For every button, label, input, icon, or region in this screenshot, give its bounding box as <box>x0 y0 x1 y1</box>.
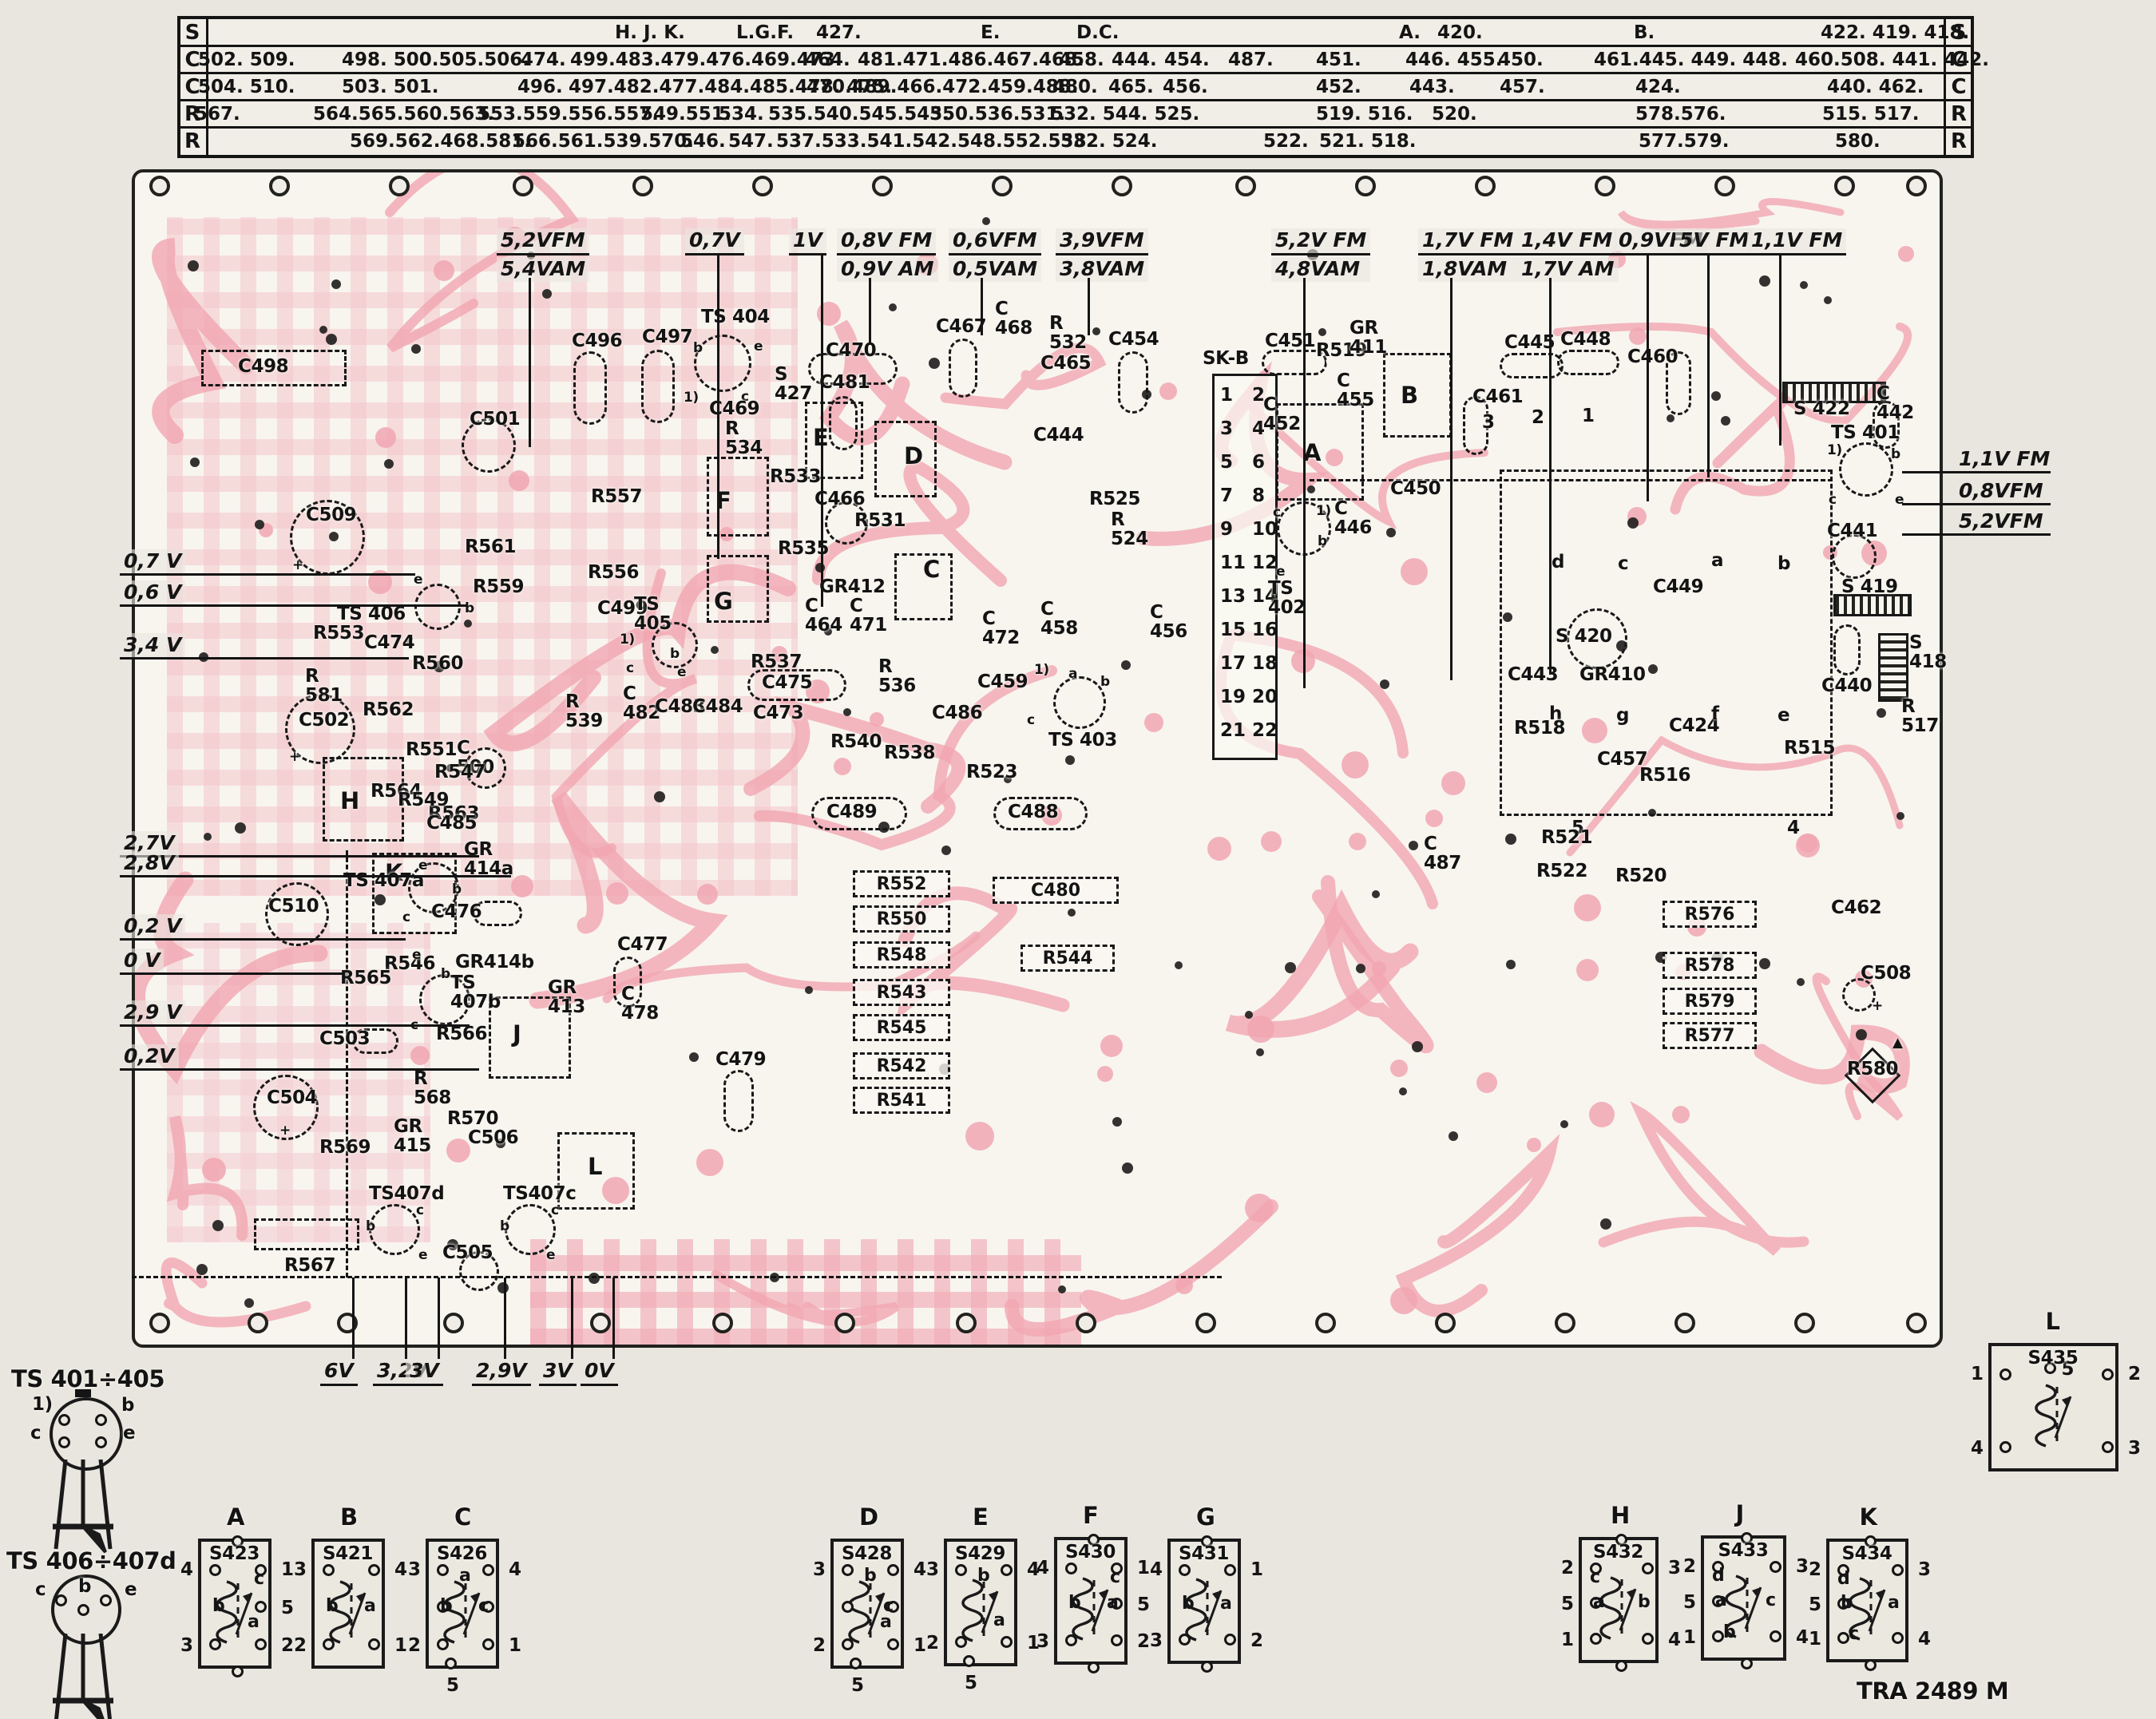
coil-detail-letter: B <box>340 1505 358 1529</box>
pinout-title: TS 401÷405 <box>11 1367 164 1391</box>
coil-pin <box>209 1638 221 1650</box>
component-label: R 524 <box>1111 511 1148 549</box>
component-label: C479 <box>715 1051 766 1070</box>
component-label: b <box>1891 448 1900 462</box>
table-cell: 460.508. 441. 442. <box>1795 50 1989 70</box>
voltage-leader-line <box>120 875 511 877</box>
callout-leader-line <box>1450 278 1453 680</box>
coil-pin-number: 3 <box>294 1559 307 1580</box>
component-label: G <box>714 589 732 613</box>
coil-pin-number: 4 <box>1971 1438 1984 1459</box>
component-label: GR 415 <box>394 1118 431 1156</box>
voltage-callout: 5V FM <box>1675 228 1753 255</box>
skb-pin-number: 11 <box>1220 553 1246 573</box>
component-label: 1) <box>684 391 699 406</box>
skb-pin-number: 3 <box>1220 418 1233 439</box>
table-cell: 458. <box>1059 50 1104 70</box>
component-label: B <box>1401 383 1418 407</box>
callout-leader-line <box>529 278 531 447</box>
coil-pin-number: 4 <box>1036 1558 1049 1578</box>
component-label: R520 <box>1615 867 1667 886</box>
pinout-pin-letter: b <box>78 1578 91 1597</box>
coil-pin-number: 5 <box>851 1675 864 1696</box>
coil-pin-number: 3 <box>2128 1438 2141 1459</box>
component-label: 1 <box>1582 407 1595 426</box>
voltage-callout: 0,6VFM0,5VAM <box>949 228 1041 282</box>
component-label: c <box>1273 506 1281 521</box>
coil-pin <box>323 1564 335 1576</box>
table-cell: 515. 517. <box>1822 104 1920 125</box>
voltage-leader-line <box>120 972 345 975</box>
pinout-pin-letter: c <box>30 1424 41 1444</box>
component-label: C484 <box>692 698 743 717</box>
coil-s-number: S429 <box>955 1545 1005 1564</box>
winding-letter: a <box>364 1596 376 1616</box>
table-cell: 481.471.486.467.468. <box>858 50 1084 70</box>
skb-pin-number: 19 <box>1220 687 1246 707</box>
winding-letter: c <box>478 1596 489 1616</box>
resistor-box: R541 <box>853 1087 950 1114</box>
table-cell: 502. 509. <box>198 50 295 70</box>
skb-pin-number: 8 <box>1252 485 1265 506</box>
coil-pin-number: 4 <box>1796 1627 1809 1648</box>
board-hole <box>513 176 533 196</box>
board-hole <box>1195 1313 1216 1333</box>
component-label: TS 407b <box>450 974 501 1012</box>
table-cell: 522. <box>1263 131 1309 152</box>
component-label: R538 <box>884 744 935 763</box>
component-label: C496 <box>572 332 622 351</box>
component-label: C454 <box>1108 331 1159 350</box>
winding-letter: b <box>1068 1593 1081 1613</box>
resistor-box: R545 <box>853 1014 950 1041</box>
callout-leader-line <box>869 278 871 345</box>
winding-letter: c <box>1590 1567 1600 1587</box>
component-label: c <box>551 1204 559 1218</box>
component-label: C473 <box>753 704 803 723</box>
pinout-pin-letter: e <box>125 1581 137 1600</box>
voltage-leader-line <box>120 938 406 941</box>
board-hole <box>1906 176 1927 196</box>
coil-pin <box>850 1658 862 1669</box>
resistor-box: R552 <box>853 870 950 897</box>
coil-pin-number: 4 <box>1918 1629 1931 1650</box>
winding-letter: b <box>212 1596 225 1616</box>
pinout-pin <box>55 1594 67 1606</box>
table-cell: 577.579. <box>1639 131 1730 152</box>
component-label: C508 <box>1861 964 1911 984</box>
coil-pin-number: 4 <box>180 1559 193 1580</box>
component-label: e <box>677 666 686 680</box>
table-cell: 535.540.545.543. <box>768 104 949 125</box>
winding-letter: c <box>1849 1624 1859 1644</box>
coil-pin-number: 2 <box>1561 1558 1574 1578</box>
table-cell: H. J. K. <box>615 22 685 43</box>
component-label: C 472 <box>982 610 1020 648</box>
component-label: e <box>412 949 421 963</box>
table-cell: B. <box>1634 22 1655 43</box>
coil-pin-number: 2 <box>1683 1556 1696 1577</box>
winding-letter: c <box>1766 1590 1776 1610</box>
component-label: S 422 <box>1793 400 1850 419</box>
table-cell: 452. <box>1316 77 1361 97</box>
table-cell: 464. <box>805 50 850 70</box>
component-label: e <box>546 1249 555 1263</box>
voltage-callout: 3,9VFM3,8VAM <box>1056 228 1148 282</box>
coil-pin <box>1999 1368 2011 1380</box>
board-hole <box>1435 1313 1456 1333</box>
table-cell: 578.576. <box>1635 104 1726 125</box>
component-label: R570 <box>447 1110 498 1129</box>
component-label: TS 401 <box>1831 424 1900 443</box>
board-hole <box>1906 1313 1927 1333</box>
skb-pin-number: 17 <box>1220 653 1246 674</box>
table-cell: 422. 419. 418. <box>1821 22 1969 43</box>
table-cell: 457. <box>1500 77 1545 97</box>
component-label: R515 <box>1784 739 1835 758</box>
coil-pin <box>1741 1658 1753 1669</box>
table-cell: 420. <box>1437 22 1483 43</box>
table-cell: 487. <box>1228 50 1274 70</box>
component-label: b <box>693 342 703 356</box>
component-label: C 446 <box>1334 500 1372 538</box>
table-cell: 443. <box>1409 77 1455 97</box>
coil-pin-number: 5 <box>1561 1594 1574 1614</box>
component-label: C509 <box>306 506 356 525</box>
coil-pin-number: 1 <box>1561 1630 1574 1650</box>
component-label: C504 <box>267 1089 317 1108</box>
table-cell: 444. <box>1112 50 1157 70</box>
board-hole <box>992 176 1013 196</box>
component-label: C474 <box>364 634 414 653</box>
table-cell: 532. 524. <box>1060 131 1158 152</box>
table-cell: 465. <box>1108 77 1154 97</box>
dashed-line <box>132 1276 1222 1278</box>
coil-pin-number: 2 <box>926 1633 939 1654</box>
component-label: e <box>1895 493 1904 508</box>
coil-s-number: S430 <box>1065 1543 1116 1563</box>
coil-pin <box>1892 1632 1904 1644</box>
coil-pin-number: 4 <box>914 1559 926 1580</box>
winding-letter: b <box>977 1566 990 1586</box>
component-label: R525 <box>1089 490 1140 509</box>
coil-pin <box>1088 1662 1100 1673</box>
component-label: S 419 <box>1841 578 1898 597</box>
component-label: C481 <box>819 374 870 393</box>
component-label: R551 <box>406 741 457 760</box>
board-hole <box>632 176 653 196</box>
coil-pin <box>1179 1564 1191 1576</box>
coil-pin-number: 2 <box>294 1635 307 1656</box>
coil-pin-number: 2 <box>1250 1630 1263 1651</box>
coil-pin <box>482 1564 494 1576</box>
component-label: C 478 <box>621 985 659 1024</box>
pinout-legs <box>11 1634 155 1719</box>
table-row-label: R <box>179 128 206 155</box>
skb-pin-number: 9 <box>1220 519 1233 540</box>
component-label: C503 <box>319 1030 370 1049</box>
skb-pin-number: 1 <box>1220 385 1233 406</box>
winding-letter: c <box>1110 1567 1120 1587</box>
board-hole <box>752 176 773 196</box>
voltage-label-bottom: 6V <box>320 1359 358 1386</box>
component-label: GR 413 <box>548 979 585 1017</box>
component-label: 2 <box>1532 409 1544 428</box>
component-label: c <box>626 662 634 676</box>
coil-pin-number: 3 <box>813 1559 826 1580</box>
component-label: a <box>1711 552 1723 571</box>
coil-pin-number: 2 <box>1137 1631 1150 1652</box>
table-row-divider <box>177 45 1974 47</box>
voltage-label-left: 0,2V <box>120 1044 179 1069</box>
table-cell: 532. 544. 525. <box>1051 104 1199 125</box>
pinout-pin <box>58 1414 70 1426</box>
table-cell: 519. 516. <box>1316 104 1413 125</box>
voltage-label-right: 5,2VFM <box>1955 509 2047 534</box>
component-label: R549 <box>398 791 449 810</box>
component-label: A <box>1303 441 1321 465</box>
component-label: b <box>1318 535 1327 549</box>
table-cell: 550.536.531. <box>929 104 1065 125</box>
voltage-leader-line <box>120 657 409 659</box>
coil-pin <box>1224 1564 1236 1576</box>
voltage-am-label: 5,4VAM <box>497 257 589 282</box>
skb-pin-number: 6 <box>1252 452 1265 473</box>
coil-pin <box>887 1638 899 1650</box>
component-label: e <box>418 1249 427 1263</box>
table-cell: 547. <box>728 131 774 152</box>
board-hole <box>1076 1313 1096 1333</box>
component-label: c <box>1618 555 1628 574</box>
coil-pin-number: 5 <box>281 1598 294 1618</box>
table-row-label: C <box>1945 73 1972 101</box>
coil-pin <box>1590 1633 1602 1645</box>
voltage-leader-line <box>1902 503 2051 505</box>
component-label: R569 <box>319 1139 371 1158</box>
callout-leader-line <box>1779 255 1781 446</box>
table-cell: 521. 518. <box>1319 131 1417 152</box>
component-label: b <box>441 968 450 982</box>
coil-pin-number: 1 <box>509 1635 521 1656</box>
voltage-label-bottom: 3V <box>539 1359 577 1386</box>
board-hole <box>1834 176 1855 196</box>
coil-pin-number: 4 <box>394 1559 407 1580</box>
coil-pin <box>1642 1633 1654 1645</box>
voltage-leader-line <box>612 1277 615 1359</box>
component-label: C465 <box>1040 354 1091 374</box>
component-label: c <box>1829 493 1837 508</box>
voltage-callout: 0,8V FM0,9V AM <box>837 228 938 282</box>
component-label: GR414b <box>455 953 534 972</box>
table-row-label: R <box>1945 101 1972 128</box>
winding-letter: b <box>864 1566 877 1586</box>
component-label: GR 414a <box>464 841 513 879</box>
component-label: C462 <box>1831 899 1881 918</box>
winding-letter: a <box>1220 1594 1232 1614</box>
skb-pin-number: 20 <box>1252 687 1278 707</box>
coil-detail-letter: C <box>454 1505 471 1529</box>
board-hole <box>834 1313 855 1333</box>
callout-leader-line <box>1549 278 1552 675</box>
coil-pin-number: 1 <box>1809 1629 1821 1650</box>
skb-pin-number: 16 <box>1252 620 1278 640</box>
component-label: R 581 <box>305 667 343 706</box>
component-label: C498 <box>238 358 288 377</box>
component-label: C451 <box>1265 332 1315 351</box>
winding-letter: b <box>1723 1622 1736 1642</box>
voltage-am-label: 4,8VAM <box>1271 257 1370 282</box>
component-label: GR412 <box>819 578 886 597</box>
coil-winding <box>1833 594 1912 616</box>
table-cell: 480. <box>1052 77 1098 97</box>
pinout-pin-letter: 1) <box>32 1396 53 1415</box>
resistor-box: C480 <box>993 877 1119 904</box>
voltage-label-left: 0,6 V <box>120 580 185 605</box>
coil-pin <box>1201 1661 1213 1673</box>
component-label: R580 <box>1847 1060 1898 1079</box>
component-label: c <box>1027 714 1035 728</box>
board-hole <box>1475 176 1496 196</box>
component-label: R521 <box>1541 829 1592 848</box>
component-label: d <box>1552 553 1564 572</box>
component-label: c <box>402 911 410 925</box>
pcb-layout-page: TRA 2489 M SSH. J. K.L.G.F.427.E.D.C.A.4… <box>0 0 2156 1719</box>
coil-pin-number: 1 <box>1971 1364 1984 1384</box>
resistor-box: R543 <box>853 979 950 1006</box>
coil-pin <box>1642 1563 1654 1574</box>
component-label: C449 <box>1653 578 1703 597</box>
table-cell: 451. <box>1316 50 1361 70</box>
voltage-leader-line <box>120 1024 470 1027</box>
coil-pin-number: 1 <box>1250 1559 1263 1580</box>
component-label: R561 <box>465 538 516 557</box>
component-label: C 442 <box>1877 385 1914 423</box>
component-label: L <box>588 1155 602 1178</box>
table-cell: 537.533.541.542.548.552.538. <box>776 131 1093 152</box>
voltage-fm-label: 5V FM <box>1675 228 1753 255</box>
voltage-fm-label: 0,8V FM <box>837 228 936 255</box>
component-label: GR 411 <box>1349 319 1387 358</box>
component-label: 1) <box>1827 444 1842 458</box>
resistor-box: R576 <box>1663 901 1757 928</box>
component-label: C 452 <box>1263 396 1301 434</box>
component-label: TS407d <box>369 1185 444 1204</box>
component-label: C461 <box>1472 388 1523 407</box>
component-label: C440 <box>1821 677 1872 696</box>
callout-leader-line <box>717 255 719 559</box>
component-label: e <box>1276 565 1285 580</box>
coil-detail-letter: F <box>1083 1503 1098 1527</box>
board-hole <box>872 176 893 196</box>
coil-s-number: S426 <box>437 1545 487 1564</box>
board-hole <box>1595 176 1615 196</box>
component-label: ▲ <box>1892 1036 1903 1051</box>
skb-label: SK-B <box>1203 350 1249 369</box>
component-label: S 420 <box>1556 628 1612 647</box>
coil-pin-number: 3 <box>408 1559 421 1580</box>
voltage-leader-line <box>571 1277 573 1359</box>
table-cell: 498. 500.505.506. <box>342 50 529 70</box>
coil-detail-letter: L <box>2046 1309 2060 1333</box>
component-label: + <box>279 1124 291 1139</box>
table-cell: 440. 462. <box>1827 77 1924 97</box>
coil-pin-number: 4 <box>1668 1630 1681 1650</box>
callout-leader-line <box>981 278 983 335</box>
voltage-label-right: 0,8VFM <box>1955 479 2047 504</box>
coil-detail-letter: H <box>1611 1503 1630 1527</box>
skb-pin-number: 22 <box>1252 720 1278 741</box>
coil-detail-letter: K <box>1860 1505 1877 1529</box>
coil-detail-letter: D <box>859 1505 878 1529</box>
skb-pin-number: 7 <box>1220 485 1233 506</box>
voltage-fm-label: 5,2V FM <box>1271 228 1370 255</box>
voltage-am-label: 1,8VAM <box>1418 257 1517 282</box>
coil-detail-letter: A <box>227 1505 244 1529</box>
component-label: C 456 <box>1150 604 1187 642</box>
coil-pin <box>368 1564 380 1576</box>
board-hole <box>1794 1313 1815 1333</box>
component-label: R567 <box>284 1257 335 1276</box>
callout-leader-line <box>1707 255 1710 477</box>
component-label: C485 <box>426 814 477 834</box>
coil-pin-number: 2 <box>813 1635 826 1656</box>
footer-label: TRA 2489 M <box>1857 1679 2008 1703</box>
component-label: C 455 <box>1337 372 1374 410</box>
voltage-am-label: 1,7V AM <box>1517 257 1619 282</box>
component-label: C510 <box>268 897 319 917</box>
skb-pin-number: 5 <box>1220 452 1233 473</box>
board-hole <box>248 1313 268 1333</box>
table-cell: 564.565.560.563. <box>313 104 494 125</box>
coil-pin-number: 3 <box>180 1635 193 1656</box>
coil-pin-number: 1 <box>281 1559 294 1580</box>
voltage-leader-line <box>1902 533 2051 536</box>
coil-pin <box>1065 1634 1077 1646</box>
table-cell: 566.561.539.570. <box>513 131 694 152</box>
coil-s-number: S433 <box>1718 1542 1769 1561</box>
coil-detail-letter: J <box>1736 1502 1744 1526</box>
pinout-title: TS 406÷407d <box>6 1549 176 1573</box>
board-hole <box>1315 1313 1336 1333</box>
coil-pin <box>1865 1659 1877 1671</box>
coil-pin <box>842 1638 854 1650</box>
voltage-am-label: 0,5VAM <box>949 257 1041 282</box>
coil-pin <box>232 1666 244 1677</box>
coil-pin <box>887 1564 899 1576</box>
coil-pin <box>1770 1561 1781 1573</box>
voltage-fm-label: 0,6VFM <box>949 228 1041 255</box>
component-label: C488 <box>1008 803 1058 822</box>
voltage-callout: 5,2V FM4,8VAM <box>1271 228 1370 282</box>
voltage-label-bottom: 2,9V <box>472 1359 531 1386</box>
coil-pin <box>955 1564 967 1576</box>
component-label: R 539 <box>565 693 603 731</box>
board-hole <box>269 176 290 196</box>
component-label: + <box>289 751 300 765</box>
component-label: 1) <box>1316 505 1331 519</box>
coil-pin <box>842 1564 854 1576</box>
component-label: C459 <box>977 673 1028 692</box>
table-cell: 534. <box>719 104 764 125</box>
resistor-box: R577 <box>1663 1022 1757 1049</box>
component-label: R 536 <box>878 658 916 696</box>
component-label: b <box>452 883 462 897</box>
voltage-label-left: 0,7 V <box>120 549 185 574</box>
component-label: C475 <box>762 674 812 693</box>
component-label: b <box>1100 675 1110 690</box>
coil-detail-letter: E <box>973 1505 988 1529</box>
component-label: R565 <box>340 969 391 988</box>
